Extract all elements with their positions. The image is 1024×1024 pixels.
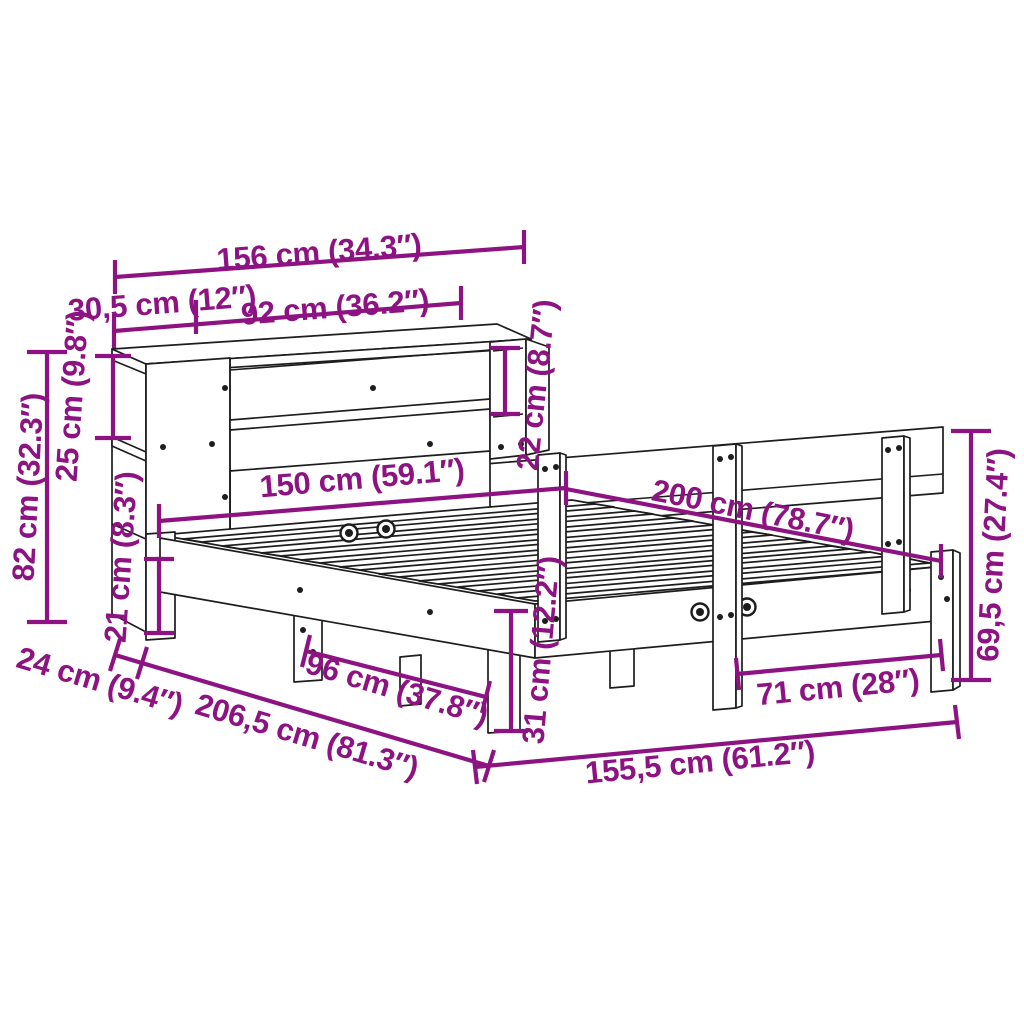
dim-label-frame-length: 155,5 cm (61.2″) [584, 734, 817, 791]
dim-label-middle-shelf-width: 92 cm (36.2″) [240, 282, 431, 332]
dim-label-base-offset-depth: 24 cm (9.4″) [13, 640, 187, 722]
dim-label-rail-height: 69,5 cm (27.4″) [970, 447, 1016, 662]
dim-label-right-shelf-height: 22 cm (8.7″) [510, 298, 563, 472]
diagram-canvas: 156 cm (34.3″) 30,5 cm (12″) 92 cm (36.2… [0, 0, 1024, 1024]
dim-label-top-shelf-height: 25 cm (9.8″) [49, 309, 96, 483]
dim-side-leg-span: 71 cm (28″) [736, 639, 943, 712]
dim-label-headboard-height: 82 cm (32.3″) [6, 392, 51, 582]
dim-label-total-width-top: 156 cm (34.3″) [215, 227, 422, 277]
bed-dimension-diagram: 156 cm (34.3″) 30,5 cm (12″) 92 cm (36.2… [0, 0, 1024, 1024]
